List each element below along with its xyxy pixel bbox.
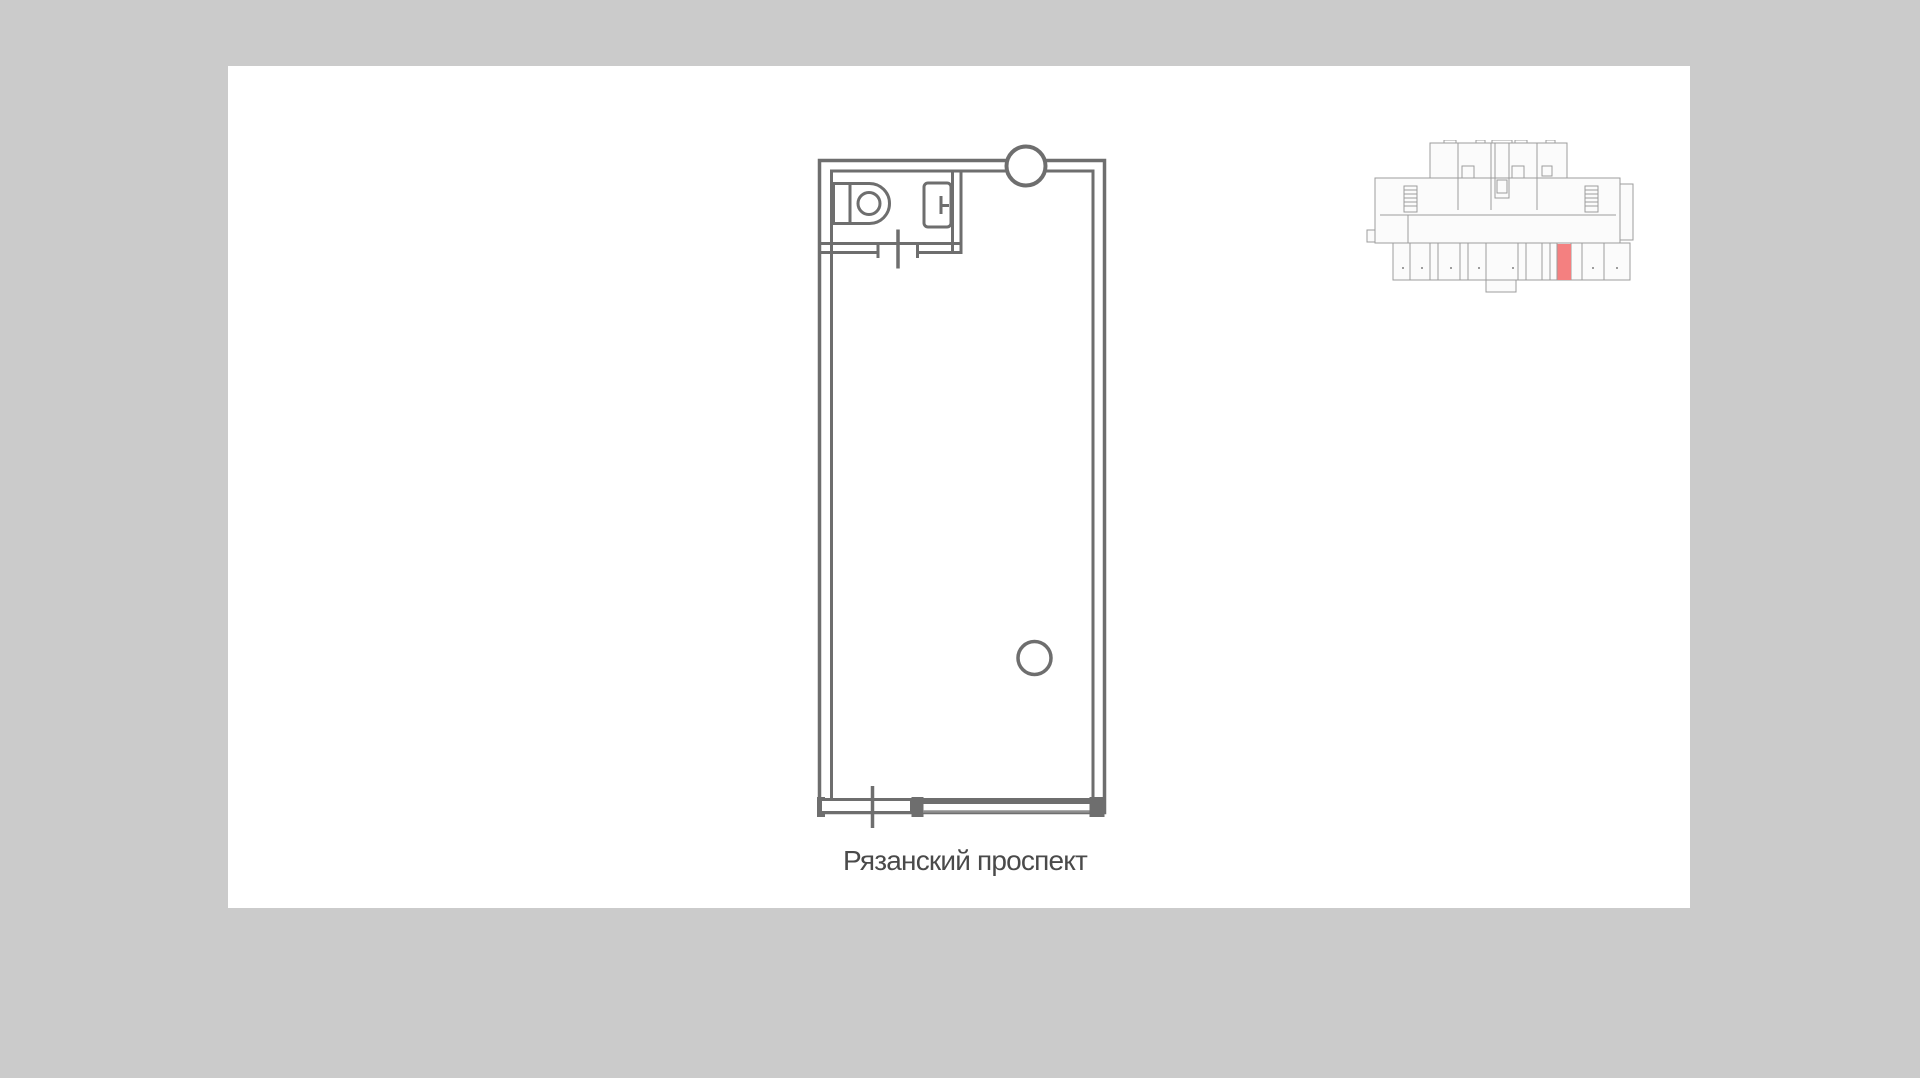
column-icon: [1007, 147, 1046, 186]
unit-floor-plan: [800, 130, 1130, 850]
minimap-building-outline: [1367, 140, 1633, 292]
building-minimap[interactable]: [1366, 140, 1666, 298]
toilet-icon: [834, 184, 890, 224]
street-label: Рязанский проспект: [765, 845, 1165, 877]
interior-column-icon: [1018, 642, 1051, 675]
minimap-highlighted-unit[interactable]: [1558, 244, 1572, 280]
sink-icon: [924, 183, 951, 227]
outer-walls: [820, 161, 1105, 813]
